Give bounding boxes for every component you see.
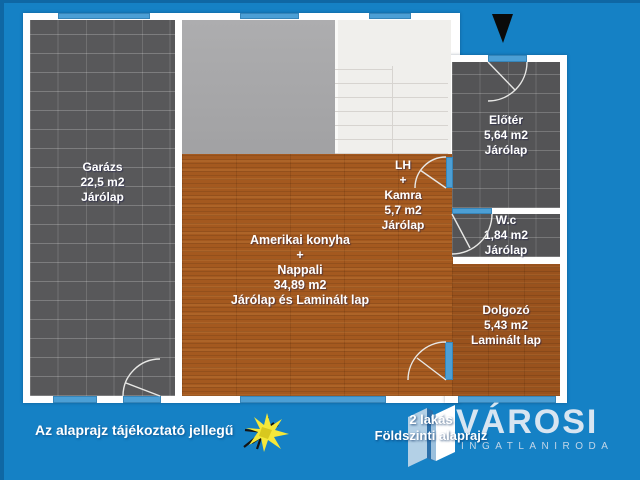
door-arc-office bbox=[408, 342, 446, 380]
door-arc-garage bbox=[123, 359, 160, 396]
door-arc-entry-hall bbox=[488, 62, 527, 101]
north-arrow-icon bbox=[492, 14, 513, 43]
floor-plan-page: Garázs 22,5 m2 Járólap Amerikai konyha +… bbox=[0, 0, 640, 480]
door-arc-pantry bbox=[415, 157, 446, 188]
plan-title-line2: Földszinti alaprajz bbox=[336, 428, 526, 444]
plan-title-line1: 2 lakás bbox=[336, 412, 526, 428]
door-arc-wc bbox=[452, 214, 492, 254]
plan-title: 2 lakás Földszinti alaprajz bbox=[336, 412, 526, 444]
sun-burst-icon bbox=[244, 413, 289, 452]
